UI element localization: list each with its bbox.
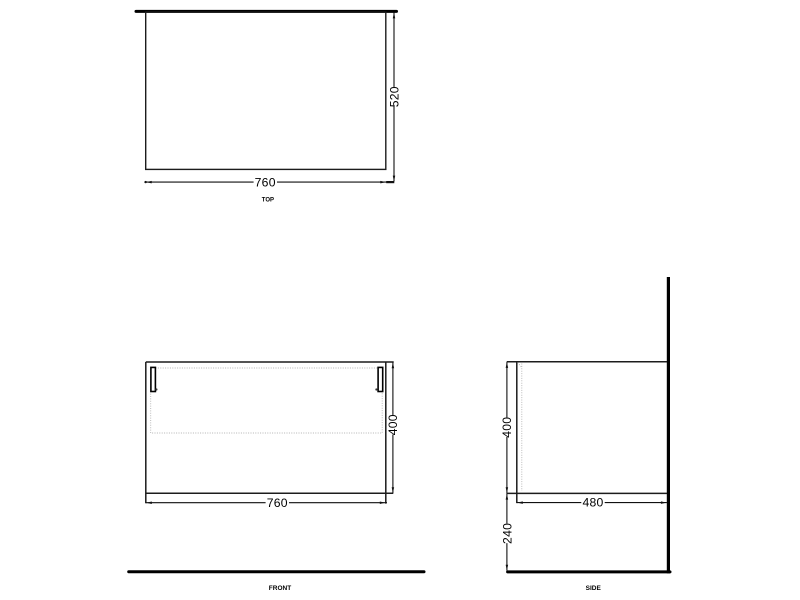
svg-text:SIDE: SIDE <box>586 585 602 592</box>
svg-text:TOP: TOP <box>262 198 274 204</box>
svg-text:480: 480 <box>582 496 603 510</box>
svg-text:760: 760 <box>267 496 288 510</box>
svg-text:240: 240 <box>500 523 514 544</box>
svg-text:FRONT: FRONT <box>269 585 291 592</box>
svg-text:400: 400 <box>386 414 400 435</box>
svg-text:520: 520 <box>388 86 402 107</box>
svg-text:400: 400 <box>500 417 514 438</box>
svg-text:760: 760 <box>255 176 276 190</box>
